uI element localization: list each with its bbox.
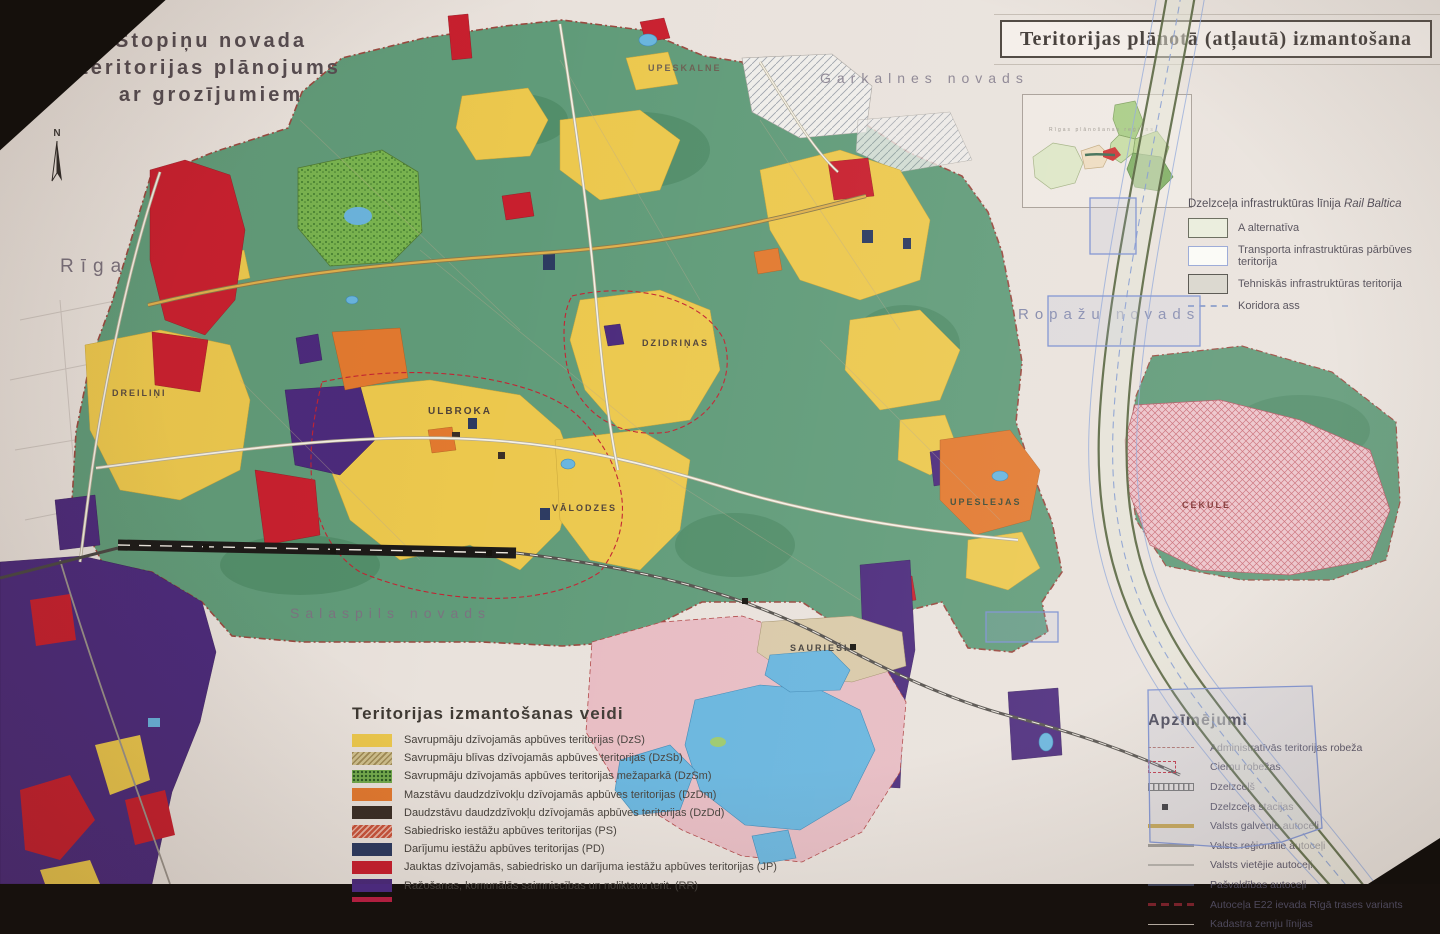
- technical-infrastructure-swatch: [1188, 274, 1228, 294]
- state-regional-road-symbol: [1148, 844, 1200, 847]
- legend-label: Mazstāvu daudzdzīvokļu dzīvojamās apbūve…: [404, 789, 716, 801]
- partial-swatch: [352, 897, 392, 902]
- header-rule-top: [994, 14, 1440, 15]
- legend-label: Administratīvās teritorijas robeža: [1210, 742, 1362, 754]
- legend-row: Savrupmāju dzīvojamās apbūves teritorija…: [352, 731, 1032, 749]
- dzdm-swatch: [352, 788, 392, 801]
- legend-label: Transporta infrastruktūras pārbūves teri…: [1238, 244, 1440, 268]
- legend-label: Valsts reģionālie autoceļi: [1210, 840, 1325, 852]
- inset-map-graphic: [1023, 95, 1191, 207]
- legend-row: Valsts reģionālie autoceļi: [1148, 836, 1440, 856]
- alternative-a-swatch: [1188, 218, 1228, 238]
- legend-row: Mazstāvu daudzdzīvokļu dzīvojamās apbūve…: [352, 786, 1032, 804]
- legend-row: Administratīvās teritorijas robeža: [1148, 738, 1440, 758]
- state-local-road-symbol: [1148, 864, 1200, 866]
- legend-label: Darījumu iestāžu apbūves teritorijas (PD…: [404, 843, 605, 855]
- land-use-legend-title: Teritorijas izmantošanas veidi: [352, 704, 1032, 724]
- pd-swatch: [352, 843, 392, 856]
- rail-baltica-legend-title-italic: Rail Baltica: [1344, 198, 1402, 210]
- legend-row: Ražošanas, komunālās saimniecības un nol…: [352, 877, 1032, 895]
- e22-route-variant-symbol: [1148, 903, 1200, 906]
- legend-label: Jauktas dzīvojamās, sabiedrisko un darīj…: [404, 861, 777, 873]
- legend-label: Autoceļa E22 ievada Rīgā trases variants: [1210, 899, 1403, 911]
- legend-row: Sabiedrisko iestāžu apbūves teritorijas …: [352, 822, 1032, 840]
- legend-row: Kadastra zemju līnijas: [1148, 914, 1440, 934]
- neighbor-label-riga: Rīga: [60, 256, 128, 278]
- legend-row: Dzelzceļa stacijas: [1148, 797, 1440, 817]
- cadastre-lines-symbol: [1148, 924, 1200, 925]
- ps-swatch: [352, 825, 392, 838]
- legend-row: Darījumu iestāžu apbūves teritorijas (PD…: [352, 840, 1032, 858]
- map-title-line1: Stopiņu novada: [52, 28, 370, 55]
- legend-label: Dzelzceļa stacijas: [1210, 801, 1293, 813]
- transport-infrastructure-swatch: [1188, 246, 1228, 266]
- railway-symbol: [1148, 783, 1200, 791]
- legend-row: Autoceļa E22 ievada Rīgā trases variants: [1148, 895, 1440, 915]
- legend-label: Kadastra zemju līnijas: [1210, 918, 1313, 930]
- state-main-road-symbol: [1148, 824, 1200, 828]
- dzsm-swatch: [352, 770, 392, 783]
- map-title-line3: ar grozījumiem: [52, 82, 370, 109]
- legend-label: Tehniskās infrastruktūras teritorija: [1238, 278, 1402, 290]
- inset-region-map: Rīgas plānošanas reģions: [1022, 94, 1192, 208]
- municipal-road-symbol: [1148, 884, 1200, 886]
- village-label-cekule: CEKULE: [1182, 500, 1231, 510]
- legend-row: A alternatīva: [1188, 218, 1440, 238]
- village-label-upeslejas: UPESLEJAS: [950, 497, 1022, 507]
- legend-row: Savrupmāju dzīvojamās apbūves teritorija…: [352, 767, 1032, 785]
- neighbor-label-salaspils: Salaspils novads: [290, 605, 491, 621]
- legend-row: Jauktas dzīvojamās, sabiedrisko un darīj…: [352, 858, 1032, 876]
- legend-label: Savrupmāju blīvas dzīvojamās apbūves ter…: [404, 752, 683, 764]
- legend-label: Koridora ass: [1238, 300, 1300, 312]
- rail-baltica-legend-title-text: Dzelzceļa infrastruktūras līnija: [1188, 198, 1344, 210]
- village-label-ulbroka: ULBROKA: [428, 406, 492, 417]
- legend-label: Dzelzceļš: [1210, 781, 1255, 793]
- legend-label: Savrupmāju dzīvojamās apbūves teritorija…: [404, 770, 712, 782]
- north-arrow-icon: [46, 139, 68, 185]
- header-box: Teritorijas plānotā (atļautā) izmantošan…: [1000, 20, 1432, 58]
- north-label: N: [42, 128, 72, 139]
- north-arrow: N: [42, 128, 72, 190]
- village-label-upeskalne: UPESKALNE: [648, 63, 722, 73]
- legend-row: Pašvaldības autoceļi: [1148, 875, 1440, 895]
- rr-swatch: [352, 879, 392, 892]
- header-title: Teritorijas plānotā (atļautā) izmantošan…: [1020, 28, 1412, 51]
- legend-row: Dzelzceļš: [1148, 777, 1440, 797]
- legend-label: Pašvaldības autoceļi: [1210, 879, 1306, 891]
- legend-row: Savrupmāju blīvas dzīvojamās apbūves ter…: [352, 749, 1032, 767]
- legend-row: Koridora ass: [1188, 300, 1440, 312]
- legend-label: A alternatīva: [1238, 222, 1299, 234]
- map-title: Stopiņu novada teritorijas plānojums ar …: [52, 28, 370, 109]
- rail-baltica-legend-title: Dzelzceļa infrastruktūras līnija Rail Ba…: [1188, 198, 1440, 210]
- dzs-swatch: [352, 734, 392, 747]
- dzsb-swatch: [352, 752, 392, 765]
- legend-label: Savrupmāju dzīvojamās apbūves teritorija…: [404, 734, 645, 746]
- header-rule-bottom: [994, 64, 1440, 65]
- symbols-legend-title: Apzīmējumi: [1148, 712, 1440, 730]
- village-label-valodzes: VĀLODZES: [552, 503, 617, 513]
- village-label-dzidrinas: DZIDRIŅAS: [642, 338, 709, 348]
- rail-baltica-legend: Dzelzceļa infrastruktūras līnija Rail Ba…: [1188, 198, 1440, 318]
- map-title-line2: teritorijas plānojums: [52, 55, 370, 82]
- legend-label: Valsts galvenie autoceļi: [1210, 820, 1319, 832]
- legend-row: Daudzstāvu daudzdzīvokļu dzīvojamās apbū…: [352, 804, 1032, 822]
- village-label-dreilini: DREILIŅI: [112, 388, 167, 398]
- legend-row: Ciemu robežas: [1148, 758, 1440, 778]
- dzdd-swatch: [352, 806, 392, 819]
- village-label-sauriesi: SAURIEŠI: [790, 643, 849, 653]
- legend-label: Sabiedrisko iestāžu apbūves teritorijas …: [404, 825, 617, 837]
- legend-row: Transporta infrastruktūras pārbūves teri…: [1188, 244, 1440, 268]
- park-pond: [344, 207, 372, 225]
- legend-label: Daudzstāvu daudzdzīvokļu dzīvojamās apbū…: [404, 807, 724, 819]
- legend-label: Ciemu robežas: [1210, 761, 1281, 773]
- neighbor-label-garkalne: Garkalnes novads: [820, 70, 1029, 86]
- legend-label: Ražošanas, komunālās saimniecības un nol…: [404, 880, 698, 892]
- railway-station-symbol: [1148, 804, 1200, 810]
- map-photo: Stopiņu novada teritorijas plānojums ar …: [0, 0, 1440, 884]
- symbols-legend: Apzīmējumi Administratīvās teritorijas r…: [1148, 712, 1440, 934]
- legend-row: Valsts vietējie autoceļi: [1148, 856, 1440, 876]
- village-boundary-symbol: [1148, 761, 1200, 773]
- legend-row: Tehniskās infrastruktūras teritorija: [1188, 274, 1440, 294]
- land-use-legend: Teritorijas izmantošanas veidi Savrupmāj…: [352, 704, 1032, 902]
- jp-swatch: [352, 861, 392, 874]
- inset-caption: Rīgas plānošanas reģions: [1049, 127, 1155, 133]
- legend-row: Valsts galvenie autoceļi: [1148, 816, 1440, 836]
- legend-label: Valsts vietējie autoceļi: [1210, 859, 1313, 871]
- neighbor-label-ropazi: Ropažu novads: [1018, 306, 1200, 323]
- admin-boundary-symbol: [1148, 747, 1200, 748]
